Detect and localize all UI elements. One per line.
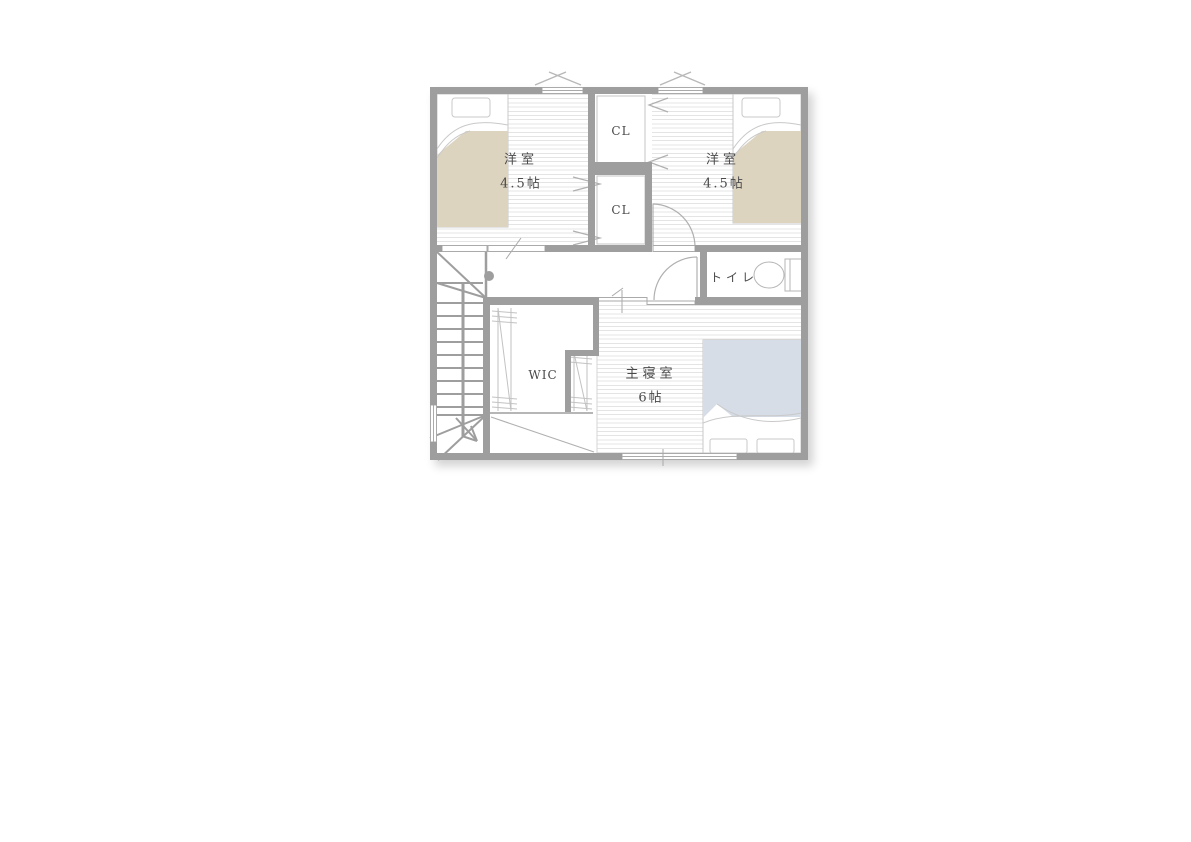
closet-upper-label: CL: [611, 124, 630, 138]
floor-plan: 洋室 4.5帖 洋室 4.5帖 CL CL トイレ WIC 主寝室 6帖: [0, 0, 1191, 842]
swing-door-toilet: [654, 257, 697, 300]
double-bed-master: [703, 340, 801, 453]
floor-plan-drawing: [0, 0, 1191, 842]
east-bedroom-area: 4.5帖: [703, 173, 745, 192]
stair-newel-dot: [484, 271, 494, 281]
master-bedroom-area: 6帖: [638, 387, 663, 406]
window-left-stairs: [431, 405, 437, 442]
stairwell-opening: [442, 246, 487, 252]
wic-hanger-rods: [492, 308, 592, 411]
stair-direction-arrow: [456, 418, 477, 441]
sliding-door-west-bedroom: [488, 238, 545, 259]
west-bedroom-area: 4.5帖: [500, 173, 542, 192]
swing-door-east-bedroom: [653, 204, 695, 247]
toilet-fixture: [754, 259, 802, 291]
window-top-west: [542, 88, 583, 94]
doorway-east-bedroom: [653, 246, 695, 252]
casement-window-marks: [535, 72, 705, 85]
master-bedroom-label: 主寝室: [625, 363, 676, 382]
single-bed-west: [437, 94, 508, 227]
closet-lower-label: CL: [611, 203, 630, 217]
east-bedroom-label: 洋室: [706, 149, 740, 168]
toilet-label: トイレ: [710, 269, 758, 286]
sliding-door-master-bedroom: [597, 288, 695, 313]
wic-label: WIC: [528, 368, 557, 382]
single-bed-east: [733, 94, 801, 223]
window-top-east: [658, 88, 703, 94]
west-bedroom-label: 洋室: [504, 149, 538, 168]
